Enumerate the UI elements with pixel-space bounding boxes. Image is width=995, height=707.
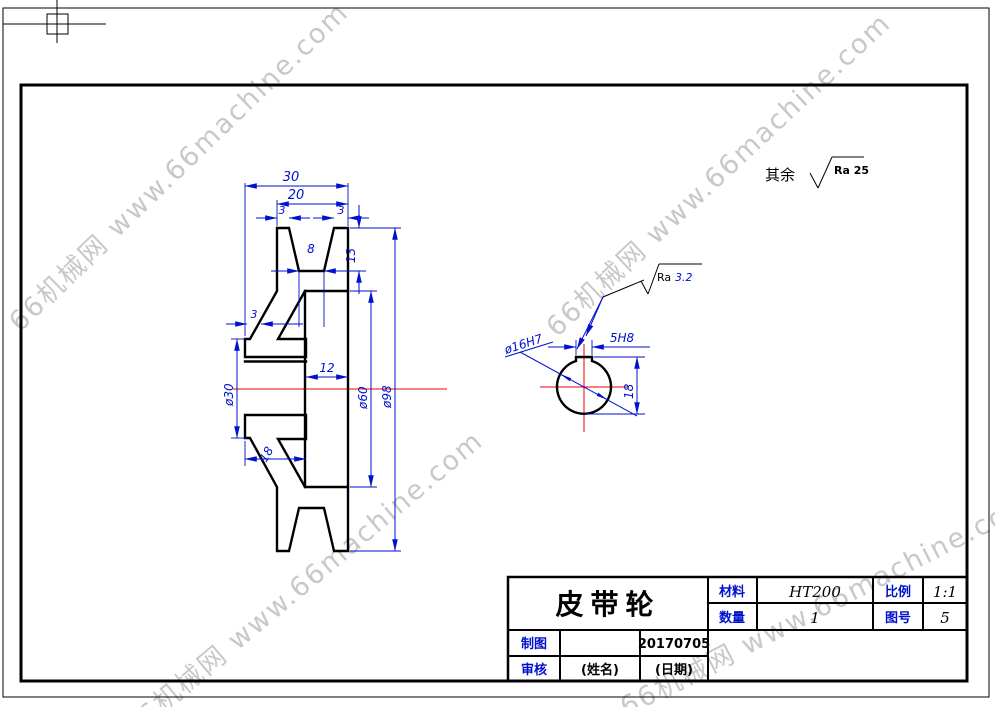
dim-rim-width: 20 (288, 188, 305, 203)
dimension-lines (226, 186, 395, 551)
quantity-value: 1 (810, 609, 820, 627)
part-name: 皮带轮 (555, 588, 660, 621)
dim-keyway-width: 5H8 (610, 331, 635, 345)
quantity-label: 数量 (719, 610, 745, 626)
drawn-label: 制图 (521, 636, 547, 652)
dim-overall-width: 30 (283, 170, 300, 185)
extension-lines (231, 183, 401, 551)
dim-keyway-depth: 18 (622, 383, 636, 399)
drawing-no-label: 图号 (885, 611, 911, 626)
pulley-upper-section (245, 228, 348, 357)
note-value: Ra 25 (834, 164, 869, 177)
dim-hub-length: 18 (256, 444, 276, 465)
dim-web-thickness: 3 (251, 308, 258, 321)
diameter-arrow-lower (597, 393, 608, 400)
dim-groove-depth: 13 (344, 248, 358, 263)
cad-canvas: 30 20 3 3 8 13 3 ø30 12 ø60 ø98 18 (0, 0, 995, 707)
keyway-roughness-callout: Ra 3.2 (577, 264, 702, 349)
paper-edge (3, 0, 989, 697)
drawing-sheet: 66机械网 www.66machine.com 66机械网 www.66mach… (0, 0, 995, 707)
scale-label: 比例 (885, 584, 911, 600)
diameter-arrow-upper (560, 374, 571, 381)
title-block: 皮带轮 材料 HT200 比例 1:1 数量 1 图号 5 制图 2017070… (508, 577, 967, 681)
roughness-icon (641, 264, 702, 294)
note-prefix: 其余 (765, 166, 795, 184)
dim-rim-inner-diameter: ø60 (356, 386, 370, 410)
dim-groove-bottom: 8 (307, 242, 315, 256)
dim-outer-diameter: ø98 (380, 385, 394, 409)
roughness-ra-label: Ra (657, 271, 671, 284)
material-value: HT200 (788, 583, 841, 601)
dim-groove-edge-left: 3 (279, 204, 286, 217)
extension-lines-right (576, 340, 645, 414)
scale-value: 1:1 (933, 583, 957, 601)
checked-label: 审核 (521, 662, 547, 678)
name-placeholder: (姓名) (581, 662, 619, 678)
pulley-lower-section (245, 415, 348, 551)
dimension-lines-right (505, 342, 650, 416)
roughness-ra-value: 3.2 (675, 271, 693, 284)
bore-view: ø16H7 5H8 18 Ra 3.2 (502, 264, 702, 432)
dim-groove-edge-right: 3 (338, 204, 345, 217)
drawing-no-value: 5 (940, 609, 950, 627)
pulley-section-view: 30 20 3 3 8 13 3 ø30 12 ø60 ø98 18 (222, 170, 447, 551)
dim-hub-diameter: ø30 (222, 383, 236, 407)
material-label: 材料 (719, 584, 745, 600)
drawn-date: 20170705 (638, 637, 710, 652)
general-roughness-note: 其余 Ra 25 (765, 157, 869, 188)
dim-recess-width: 12 (319, 361, 334, 375)
date-placeholder: (日期) (655, 663, 693, 678)
